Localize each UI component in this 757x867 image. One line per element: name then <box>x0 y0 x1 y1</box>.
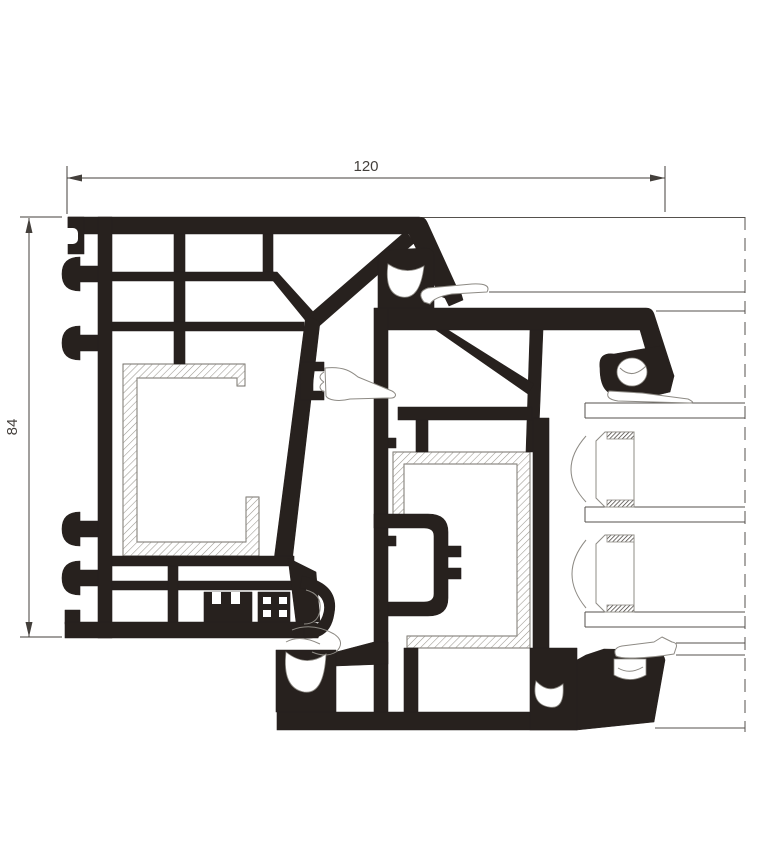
technical-drawing-page: 120 84 <box>0 0 757 867</box>
glass-pane-3 <box>585 612 745 627</box>
glazing-spacer-1 <box>596 432 634 507</box>
frame-bottom-bar <box>65 622 320 638</box>
height-dimension-label: 84 <box>4 419 21 436</box>
sash-wall-nub-1 <box>388 438 396 448</box>
frame-center-leg <box>274 314 320 562</box>
height-arrow-top <box>26 218 33 233</box>
frame-tab-2 <box>62 326 98 360</box>
glazing-packer-arc-1 <box>571 436 586 502</box>
frame-screw-channel-2 <box>258 592 290 622</box>
sash-web-horizontal <box>398 407 532 420</box>
window-profile-cross-section: 120 84 <box>0 0 757 867</box>
sash-steel-reinforcement <box>393 452 530 648</box>
glass-pane-2 <box>585 507 745 522</box>
frame-web-horizontal-4 <box>112 581 308 590</box>
glazing-unit <box>571 403 745 627</box>
frame-tab-4 <box>62 561 98 595</box>
bottom-glazing-bead <box>615 637 677 658</box>
glazing-spacer-2 <box>596 535 634 612</box>
frame-screw-channel <box>204 592 252 622</box>
sash-bottom-connector <box>336 642 388 666</box>
width-arrow-left <box>67 175 82 182</box>
width-dimension: 120 <box>67 158 665 214</box>
projection-lines <box>421 217 745 732</box>
height-arrow-bottom <box>26 622 33 637</box>
bead-pocket-gasket <box>614 659 646 680</box>
sash-web-stub <box>416 420 428 452</box>
frame-web-vertical-1 <box>174 234 185 364</box>
frame-left-wall <box>98 217 112 638</box>
sash-bottom-web <box>404 648 418 712</box>
frame-tab-3 <box>62 512 98 546</box>
frame-steel-reinforcement <box>123 364 259 556</box>
glazing-packer-arc-2 <box>572 540 586 608</box>
frame-web-diagonal <box>266 272 315 321</box>
frame-web-vertical-3 <box>168 566 178 622</box>
arm-bubble-gasket <box>617 358 647 386</box>
glass-pane-1 <box>585 403 745 418</box>
frame-tab-1 <box>62 257 98 291</box>
frame-gasket-clip <box>300 362 324 400</box>
sash-web-diagonal <box>436 330 534 394</box>
width-arrow-right <box>650 175 665 182</box>
frame-left-notch <box>60 228 78 244</box>
width-dimension-label: 120 <box>353 158 378 175</box>
sash-glass-side-wall <box>533 418 549 663</box>
frame-web-horizontal-1 <box>112 272 274 281</box>
frame-web-horizontal-3 <box>112 556 294 566</box>
sash-wall-nub-2 <box>388 536 396 546</box>
height-dimension: 84 <box>4 217 62 637</box>
frame-bottom-gasket-2 <box>286 638 320 644</box>
frame-web-horizontal-2 <box>112 322 304 331</box>
